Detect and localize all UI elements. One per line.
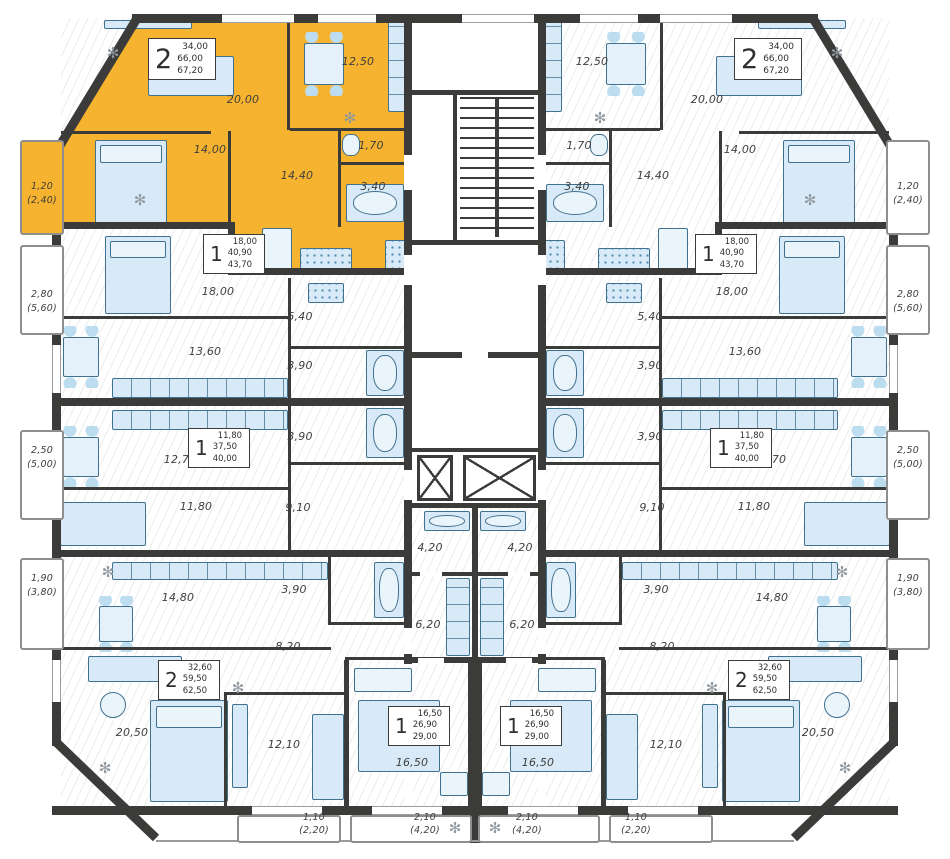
plant-icon: ✻ xyxy=(102,563,115,581)
apartment-stats-1room-mid-left[interactable]: 1 18,0040,9043,70 xyxy=(203,234,265,274)
door-opening xyxy=(418,658,444,663)
window xyxy=(660,14,732,23)
stat-value: 66,00 xyxy=(763,53,794,65)
room-area-label: 12,10 xyxy=(650,738,683,751)
window xyxy=(318,14,376,23)
room-area-label: 14,00 xyxy=(724,143,757,156)
stat-value: 37,50 xyxy=(735,442,764,453)
stat-value: 40,90 xyxy=(720,248,749,259)
stat-value: 67,20 xyxy=(763,65,794,77)
stat-value: 59,50 xyxy=(753,674,782,685)
room-area-label: 11,80 xyxy=(180,500,213,513)
floor-plan: 20,00 12,50 14,00 14,40 1,70 3,40 1,20 (… xyxy=(0,0,950,859)
balcony-area-label: (4,20) xyxy=(512,825,542,836)
stat-value: 66,00 xyxy=(177,53,208,65)
stat-value: 40,00 xyxy=(735,454,764,465)
balcony-area-label: 1,90 xyxy=(31,573,53,584)
stat-value: 34,00 xyxy=(768,41,794,53)
window xyxy=(889,660,898,702)
balcony xyxy=(20,558,64,650)
door-opening xyxy=(404,155,412,190)
plant-icon: ✻ xyxy=(449,819,462,837)
room-area-label: 3,90 xyxy=(281,583,306,596)
balcony-area-label: 2,50 xyxy=(897,445,919,456)
plant-icon: ✻ xyxy=(836,563,849,581)
balcony xyxy=(886,430,930,520)
stat-value: 34,00 xyxy=(182,41,208,53)
window xyxy=(52,660,61,702)
rooms-count: 1 xyxy=(210,244,223,264)
balcony-area-label: 2,10 xyxy=(516,812,538,823)
door-opening xyxy=(404,628,412,654)
room-area-label: 16,50 xyxy=(522,756,555,769)
balcony-area-label: (2,20) xyxy=(299,825,329,836)
stat-value: 16,50 xyxy=(530,709,554,720)
stat-value: 40,00 xyxy=(213,454,242,465)
apartment-stats-2room-top-left[interactable]: 2 34,0066,0067,20 xyxy=(148,38,216,80)
stat-value: 59,50 xyxy=(183,674,212,685)
room-area-label: 13,60 xyxy=(729,345,762,358)
stat-value: 16,50 xyxy=(418,709,442,720)
stat-value: 18,00 xyxy=(233,237,257,248)
plant-icon: ✻ xyxy=(804,191,817,209)
plant-icon: ✻ xyxy=(594,109,607,127)
balcony-area-label: (3,80) xyxy=(893,587,923,598)
room-area-label: 12,10 xyxy=(268,738,301,751)
door-opening xyxy=(538,470,546,500)
rooms-count: 2 xyxy=(155,46,172,73)
plant-icon: ✻ xyxy=(706,679,719,697)
apartment-stats-1room-mid-right[interactable]: 1 18,0040,9043,70 xyxy=(695,234,757,274)
stat-value: 18,00 xyxy=(725,237,749,248)
balcony-area-label: 1,10 xyxy=(625,812,647,823)
balcony-area-label: (5,00) xyxy=(893,459,923,470)
room-area-label: 1,70 xyxy=(566,139,591,152)
rooms-count: 1 xyxy=(717,438,730,458)
room-area-label: 14,40 xyxy=(281,169,314,182)
room-area-label: 20,00 xyxy=(691,93,724,106)
stat-value: 43,70 xyxy=(228,260,257,271)
room-area-label: 3,90 xyxy=(637,359,662,372)
stat-value: 29,00 xyxy=(413,732,442,743)
apartment-stats-studio-right[interactable]: 1 16,5026,9029,00 xyxy=(500,706,562,746)
balcony-area-label: (5,00) xyxy=(27,459,57,470)
room-area-label: 5,40 xyxy=(287,310,312,323)
plant-icon: ✻ xyxy=(134,191,147,209)
balcony-area-label: 2,10 xyxy=(414,812,436,823)
room-area-label: 18,00 xyxy=(202,285,235,298)
door-opening xyxy=(538,155,546,190)
stat-value: 37,50 xyxy=(213,442,242,453)
room-area-label: 3,90 xyxy=(637,430,662,443)
room-area-label: 14,00 xyxy=(194,143,227,156)
stat-value: 67,20 xyxy=(177,65,208,77)
stat-value: 32,60 xyxy=(758,663,782,674)
room-area-label: 13,60 xyxy=(189,345,222,358)
room-area-label: 1,70 xyxy=(358,139,383,152)
door-opening xyxy=(404,470,412,500)
balcony-area-label: (2,40) xyxy=(27,195,57,206)
room-area-label: 3,40 xyxy=(360,180,385,193)
room-area-label: 14,80 xyxy=(756,591,789,604)
balcony-area-label: 2,80 xyxy=(897,289,919,300)
room-area-label: 16,50 xyxy=(396,756,429,769)
rooms-count: 2 xyxy=(741,46,758,73)
stat-value: 40,90 xyxy=(228,248,257,259)
rooms-count: 1 xyxy=(195,438,208,458)
room-area-label: 6,20 xyxy=(415,618,440,631)
room-area-label: 9,10 xyxy=(285,501,310,514)
balcony-area-label: 2,50 xyxy=(31,445,53,456)
balcony-area-label: 1,20 xyxy=(897,181,919,192)
balcony-area-label: (2,40) xyxy=(893,195,923,206)
balcony-area-label: 2,80 xyxy=(31,289,53,300)
room-area-label: 20,00 xyxy=(227,93,260,106)
entrance-door[interactable] xyxy=(462,14,534,23)
plant-icon: ✻ xyxy=(344,109,357,127)
balcony-area-label: (4,20) xyxy=(410,825,440,836)
balcony-area-label: (5,60) xyxy=(27,303,57,314)
room-area-label: 11,80 xyxy=(738,500,771,513)
room-area-label: 8,20 xyxy=(649,640,674,653)
apartment-stats-studio-left[interactable]: 1 16,5026,9029,00 xyxy=(388,706,450,746)
room-area-label: 9,10 xyxy=(639,501,664,514)
door-opening xyxy=(538,628,546,654)
stat-value: 62,50 xyxy=(753,686,782,697)
plant-icon: ✻ xyxy=(831,44,844,62)
room-area-label: 20,50 xyxy=(802,726,835,739)
apartment-stats-2room-bottom-right[interactable]: 2 32,6059,5062,50 xyxy=(728,660,790,700)
rooms-count: 2 xyxy=(165,670,178,690)
apartment-stats-2room-bottom-left[interactable]: 2 32,6059,5062,50 xyxy=(158,660,220,700)
plant-icon: ✻ xyxy=(99,759,112,777)
room-area-label: 12,50 xyxy=(576,55,609,68)
room-area-label: 4,20 xyxy=(417,541,442,554)
balcony xyxy=(20,430,64,520)
apartment-stats-1room-low-left[interactable]: 1 11,8037,5040,00 xyxy=(188,428,250,468)
room-area-label: 3,40 xyxy=(564,180,589,193)
room-area-label: 20,50 xyxy=(116,726,149,739)
plant-icon: ✻ xyxy=(107,44,120,62)
plant-icon: ✻ xyxy=(839,759,852,777)
balcony-area-label: (5,60) xyxy=(893,303,923,314)
door-opening xyxy=(462,352,488,358)
stat-value: 26,90 xyxy=(413,720,442,731)
balcony-area-label: (2,20) xyxy=(621,825,651,836)
stat-value: 11,80 xyxy=(218,431,242,442)
door-opening xyxy=(404,255,412,285)
room-area-label: 18,00 xyxy=(716,285,749,298)
room-area-label: 6,20 xyxy=(509,618,534,631)
window xyxy=(52,345,61,393)
rooms-count: 1 xyxy=(395,716,408,736)
balcony xyxy=(886,558,930,650)
room-area-label: 14,80 xyxy=(162,591,195,604)
stat-value: 32,60 xyxy=(188,663,212,674)
stat-value: 26,90 xyxy=(525,720,554,731)
rooms-count: 1 xyxy=(702,244,715,264)
stat-value: 62,50 xyxy=(183,686,212,697)
room-area-label: 3,90 xyxy=(287,430,312,443)
apartment-stats-2room-top-right[interactable]: 2 34,0066,0067,20 xyxy=(734,38,802,80)
door-opening xyxy=(506,658,532,663)
plant-icon: ✻ xyxy=(489,819,502,837)
plant-icon: ✻ xyxy=(232,679,245,697)
room-area-label: 14,40 xyxy=(637,169,670,182)
window xyxy=(222,14,294,23)
balcony-area-label: 1,90 xyxy=(897,573,919,584)
rooms-count: 1 xyxy=(507,716,520,736)
room-area-label: 4,20 xyxy=(507,541,532,554)
window xyxy=(580,14,638,23)
balcony-area-label: 1,20 xyxy=(31,181,53,192)
door-opening xyxy=(508,572,530,576)
stat-value: 29,00 xyxy=(525,732,554,743)
door-opening xyxy=(538,255,546,285)
room-area-label: 8,20 xyxy=(275,640,300,653)
stat-value: 43,70 xyxy=(720,260,749,271)
room-area-label: 5,40 xyxy=(637,310,662,323)
room-area-label: 3,90 xyxy=(287,359,312,372)
balcony-area-label: (3,80) xyxy=(27,587,57,598)
room-area-label: 3,90 xyxy=(643,583,668,596)
door-opening xyxy=(420,572,442,576)
stat-value: 11,80 xyxy=(740,431,764,442)
window xyxy=(889,345,898,393)
balcony-area-label: 1,10 xyxy=(303,812,325,823)
room-area-label: 12,50 xyxy=(342,55,375,68)
apartment-stats-1room-low-right[interactable]: 1 11,8037,5040,00 xyxy=(710,428,772,468)
rooms-count: 2 xyxy=(735,670,748,690)
